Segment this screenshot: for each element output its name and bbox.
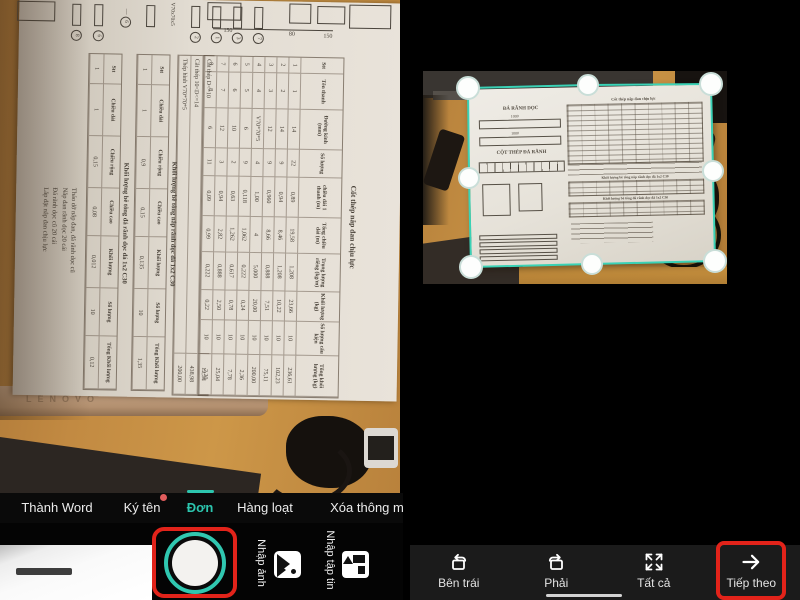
table-cell: 0,135 [133, 237, 148, 289]
section-sketch [317, 6, 345, 24]
table-cell: 10 [235, 321, 248, 355]
app-screenshot: { "colors": { "accent_teal": "#2cc5ae", … [0, 0, 800, 600]
table-cell: 1 [136, 85, 151, 137]
table-cell: 25,04 [211, 354, 224, 395]
crop-overlay [410, 0, 800, 600]
crop-handle-bottom-mid[interactable] [582, 254, 602, 274]
document-photo-rotated: 150 80 150 7 3 1 2 V70x70x5 — 6 6 8 [0, 0, 400, 403]
table-cell: 0,15 [134, 189, 149, 237]
thumbnail-detail [16, 568, 72, 575]
import-file-label: Nhập tập tin [324, 526, 336, 594]
crop-action-bar: Bên trái Phải Tất cả Tiếp theo [410, 545, 800, 600]
crop-handle-bottom-left[interactable] [460, 256, 482, 278]
table-cell: 2,50 [212, 290, 225, 320]
document-title: Cốt thép nắp đan chịu lực [346, 58, 361, 397]
table-cell: 1,062 [237, 217, 250, 253]
table-cell: 1,00 [250, 177, 263, 217]
rebar-sketch [212, 6, 221, 28]
gallery-thumbnail[interactable] [0, 545, 152, 600]
home-indicator[interactable] [546, 594, 622, 597]
table-cell: Stt [151, 55, 170, 85]
table-cell: 4 [250, 149, 262, 177]
callout-6: — 6 [120, 9, 131, 28]
section-sketch [17, 1, 55, 22]
charger-object [268, 408, 398, 493]
table-cell: Đường kính (mm) [299, 110, 343, 151]
table-cell: 2 [276, 73, 289, 109]
selected-tab-indicator [187, 490, 214, 493]
table-cell: 2 [276, 57, 288, 73]
table-cell: Chiều rộng [149, 137, 168, 189]
table-cell: 2 [226, 148, 238, 176]
notification-dot [160, 494, 167, 501]
table-cell: 0,960 [262, 177, 275, 217]
table-cell: 14 [275, 109, 288, 149]
table-cell: 0,12 [84, 336, 99, 389]
steel-table: SttTên thanhĐường kính (mm)Số lượngchiều… [198, 55, 345, 398]
table-cell: 4 [249, 217, 262, 253]
table-cell: 22 [286, 150, 298, 178]
table-cell: 1,35 [132, 337, 147, 390]
table-cell: 5,000 [248, 253, 261, 291]
table-cell: Tổng Khối lượng [146, 337, 165, 390]
steel-profile-label: V70x70x5 [169, 2, 175, 25]
expand-icon [642, 550, 666, 574]
table-cell: 7 [216, 56, 228, 72]
table-cell: Tên thanh [300, 74, 344, 111]
table-cell: Số lượng [298, 150, 341, 179]
table-cell: 236,61 [283, 355, 296, 396]
dimension-label: 80 [289, 32, 295, 38]
crop-border [468, 84, 715, 267]
table-cell: 5 [240, 57, 252, 73]
table-cell: 1 [88, 84, 103, 136]
crop-handle-bottom-right[interactable] [704, 250, 726, 272]
table-cell: 10 [85, 288, 100, 336]
crop-handle-top-right[interactable] [700, 73, 722, 95]
table-cell: 10 [247, 321, 260, 355]
rebar-sketch [94, 4, 103, 26]
rotate-left-icon [447, 550, 471, 574]
table-cell: 3 [214, 148, 226, 176]
table-cell: Khối lượng (kg) [296, 292, 340, 323]
camera-viewfinder: LENOVO 150 80 150 7 3 1 [0, 0, 400, 493]
table-cell: 19,58 [285, 217, 298, 253]
table-cell: 12 [215, 108, 228, 148]
table-cell: 1 [89, 54, 104, 84]
table-cell: 200,00 [173, 354, 186, 395]
table-cell: 14 [287, 110, 300, 150]
table-cell: 12,34 [197, 354, 210, 395]
table-cell: 10 [271, 321, 284, 355]
table-cell: 5 [240, 73, 253, 109]
tab-thanh-word[interactable]: Thành Word [21, 500, 92, 515]
table-cell: 0,24 [236, 291, 249, 321]
callout-circle: 8 [71, 30, 82, 41]
table-cell: 7,78 [223, 354, 236, 395]
table-cell: Số lượng [147, 289, 166, 337]
table-cell: 0,15 [87, 136, 102, 188]
table-cell: 2,36 [235, 355, 248, 396]
rotate-right-label: Phải [544, 576, 568, 590]
capture-screen: LENOVO 150 80 150 7 3 1 [0, 0, 403, 600]
table-cell: 1 [288, 58, 300, 74]
callout-circle: 7 [253, 33, 264, 44]
concrete-table-1: SttChiều dàiChiều rộngChiều caoKhối lượn… [131, 54, 171, 392]
table-cell: chiều dài 1 thanh (m) [298, 178, 342, 219]
table-cell: 0,617 [224, 252, 237, 290]
table-cell: 0,89 [286, 178, 299, 218]
table-cell: Tổng khối lượng (kg) [295, 356, 339, 398]
table-cell: 0,94 [274, 177, 287, 217]
table-cell: V70*70*5 [251, 109, 264, 149]
table-cell: 10 [259, 321, 272, 355]
table-cell: Stt [103, 54, 122, 84]
callout-circle: 1 [211, 32, 222, 43]
table-cell: 6 [228, 56, 240, 72]
table-cell: 1 [288, 74, 301, 110]
select-all-label: Tất cả [637, 576, 670, 590]
table-cell: 0,08 [86, 188, 101, 236]
tab-ky-ten[interactable]: Ký tên [124, 500, 161, 515]
table-cell: 10 [283, 321, 296, 355]
table-cell: Số lượng cấu kiện [295, 322, 339, 357]
table-cell: 7 [216, 72, 229, 108]
table-cell: Chiều cao [100, 188, 119, 236]
section-sketch [349, 5, 391, 30]
table-cell: Chiều dài [150, 85, 169, 137]
dimension-label: 150 [223, 28, 232, 34]
rebar-sketch [254, 7, 263, 29]
table-cell: 20,00 [248, 291, 261, 321]
tab-xoa-thong-minh[interactable]: Xóa thông m [330, 500, 404, 515]
table-cell: 9 [262, 149, 274, 177]
table-cell: Trọng lượng riêng (kg/m) [296, 254, 340, 293]
crop-handle-top-left[interactable] [457, 77, 479, 99]
table-cell: 75,11 [259, 355, 272, 396]
table-cell: 10 [211, 320, 224, 354]
tab-hang-loat[interactable]: Hàng loạt [237, 500, 293, 515]
import-image-label: Nhập ảnh [255, 534, 267, 592]
table-cell: 1 [137, 55, 152, 85]
desk-mat [0, 432, 261, 493]
crop-handle-right-mid[interactable] [703, 161, 723, 181]
table-cell: 12 [263, 109, 276, 149]
dimension-label: 150 [323, 34, 332, 40]
next-button[interactable]: Tiếp theo [708, 545, 794, 600]
table-cell: 0,012 [85, 236, 100, 288]
rebar-sketch [233, 7, 242, 29]
rebar-sketch [146, 5, 155, 27]
paper-sheet: 150 80 150 7 3 1 2 V70x70x5 — 6 6 8 [13, 0, 400, 401]
rotate-left-label: Bên trái [438, 576, 479, 590]
table-cell: 3 [264, 57, 276, 73]
table-cell: 10 [227, 108, 240, 148]
table-cell: Chiều cao [148, 189, 167, 237]
table-cell: 8,46 [273, 217, 286, 253]
annotation-red-box-next [716, 541, 786, 600]
table-cell: Tổng Khối lượng [98, 336, 117, 389]
table-cell: Chiều rộng [101, 136, 120, 188]
mode-tab-bar: Thành Word Ký tên Đơn Hàng loạt Xóa thôn… [0, 493, 403, 523]
table-cell: 0,888 [212, 252, 225, 290]
crop-handle-left-mid[interactable] [459, 168, 479, 188]
table-cell: 6 [228, 72, 241, 108]
crop-screen: ĐÁ RÃNH DỌC 1000 1000 CỘT THÉP ĐÁ RÃNH C… [410, 0, 800, 600]
select-all-button[interactable]: Tất cả [611, 545, 697, 600]
table-cell: 9 [274, 149, 286, 177]
rotate-right-button[interactable]: Phải [513, 545, 599, 600]
table-cell: 0,888 [260, 253, 273, 291]
table-cell: 8,66 [261, 217, 274, 253]
table-cell: 10 [223, 320, 236, 354]
section-sketch [289, 4, 311, 24]
table-cell: 4 [252, 57, 264, 73]
shutter-button[interactable] [172, 540, 218, 586]
table-cell: 438,98 [185, 354, 198, 395]
import-image-icon[interactable] [274, 551, 301, 578]
table-cell: Stt [300, 58, 343, 75]
table-cell: 0,222 [236, 253, 249, 291]
table-cell: 102,23 [271, 355, 284, 396]
table-cell: 0,63 [226, 176, 239, 216]
table-cell: 0,78 [224, 290, 237, 320]
table-cell: 9 [238, 149, 250, 177]
document-notes: Tháo dỡ nắp đan, đá rãnh dọc cũ Nắp đan … [37, 187, 78, 393]
table-cell: 3 [264, 73, 277, 109]
table-cell: 4 [252, 73, 265, 109]
table-cell: Chiều dài [102, 84, 121, 136]
callout-circle: 2 [190, 32, 201, 43]
table-cell: 1,262 [225, 216, 238, 252]
table-cell: Khối lượng [147, 237, 166, 289]
table-cell: Tổng chiều dài (m) [297, 218, 341, 255]
table-cell: Số lượng [99, 288, 118, 336]
concrete-table-2: SttChiều dàiChiều rộngChiều caoKhối lượn… [83, 53, 123, 391]
rotate-right-icon [544, 550, 568, 574]
table-cell: 0,94 [214, 176, 227, 216]
rebar-sketch [72, 4, 81, 26]
table-cell: 2,82 [213, 216, 226, 252]
rotate-left-button[interactable]: Bên trái [416, 545, 502, 600]
table-cell: 10,22 [272, 291, 285, 321]
table-cell: 1,208 [284, 253, 297, 291]
callout-circle: 3 [232, 33, 243, 44]
import-file-icon[interactable] [342, 551, 369, 578]
table-cell: 10 [133, 289, 148, 337]
table-cell: 200,00 [247, 355, 260, 396]
table-cell: 7,51 [260, 291, 273, 321]
tab-don[interactable]: Đơn [187, 500, 214, 515]
table-cell: 1,208 [272, 253, 285, 291]
table-cell: Khối lượng [99, 236, 118, 288]
table-cell: 0,9 [135, 137, 150, 189]
crop-handle-top-mid[interactable] [578, 75, 598, 95]
capture-controls: Nhập ảnh Nhập tập tin [0, 523, 403, 600]
callout-circle: 6 [93, 30, 104, 41]
rebar-sketch [191, 6, 200, 28]
table-cell: 0,118 [238, 177, 251, 217]
table-cell: 23,66 [284, 291, 297, 321]
table-cell: 6 [239, 109, 252, 149]
